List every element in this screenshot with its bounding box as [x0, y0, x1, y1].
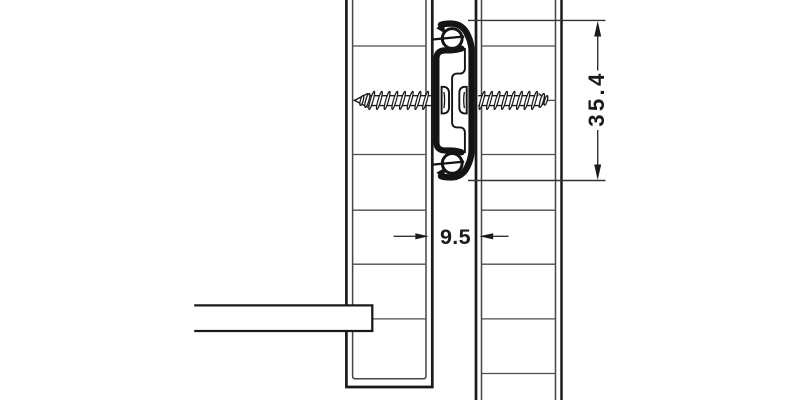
svg-text:9.5: 9.5 — [440, 225, 471, 249]
svg-text:35.4: 35.4 — [584, 73, 609, 127]
